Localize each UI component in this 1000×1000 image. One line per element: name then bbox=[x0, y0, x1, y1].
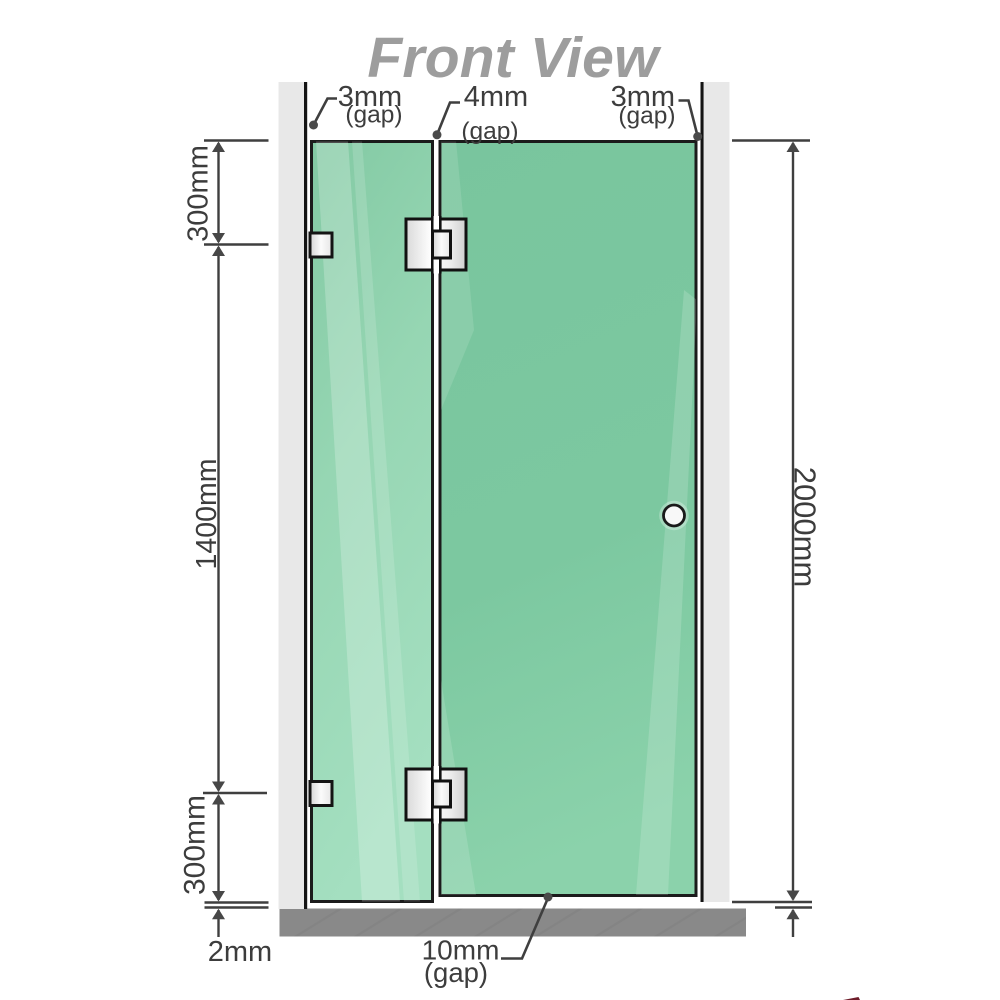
svg-text:(gap): (gap) bbox=[461, 118, 518, 145]
svg-text:(gap): (gap) bbox=[345, 102, 402, 129]
svg-text:2000mm: 2000mm bbox=[788, 467, 823, 588]
svg-text:1400mm: 1400mm bbox=[191, 459, 223, 570]
svg-text:(gap): (gap) bbox=[424, 957, 488, 988]
svg-text:300mm: 300mm bbox=[183, 145, 215, 242]
svg-text:(gap): (gap) bbox=[618, 103, 675, 130]
svg-text:4mm: 4mm bbox=[464, 81, 528, 113]
svg-text:300mm: 300mm bbox=[179, 795, 212, 895]
svg-text:2mm: 2mm bbox=[208, 936, 272, 968]
